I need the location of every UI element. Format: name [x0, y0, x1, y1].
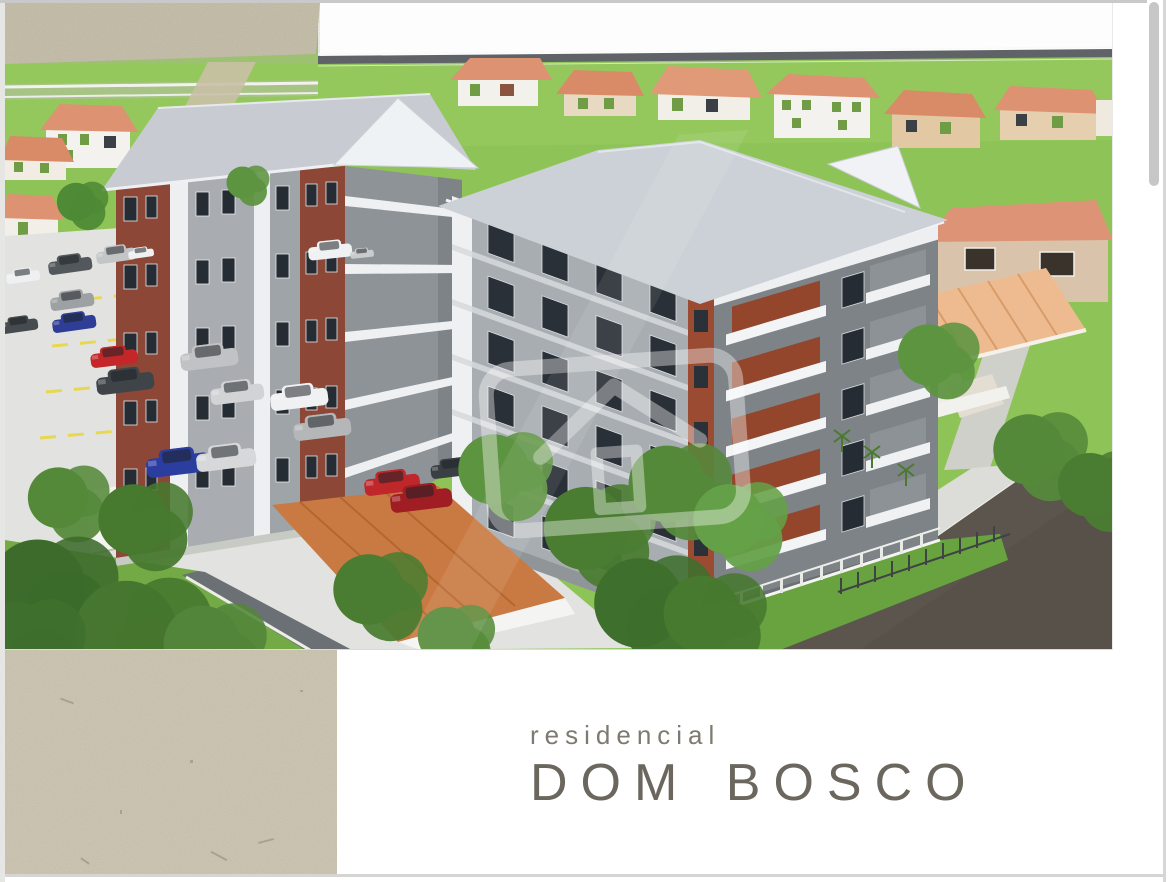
paper-texture-panel: [5, 650, 337, 875]
photo-viewer-page: residencial DOM BOSCO: [0, 0, 1170, 882]
brand-block: residencial DOM BOSCO: [530, 720, 979, 810]
brand-residencial-label: residencial: [530, 720, 979, 750]
scrollbar-thumb[interactable]: [1149, 2, 1159, 186]
brand-name-label: DOM BOSCO: [530, 756, 979, 810]
scrollbar-track[interactable]: [1146, 0, 1160, 882]
